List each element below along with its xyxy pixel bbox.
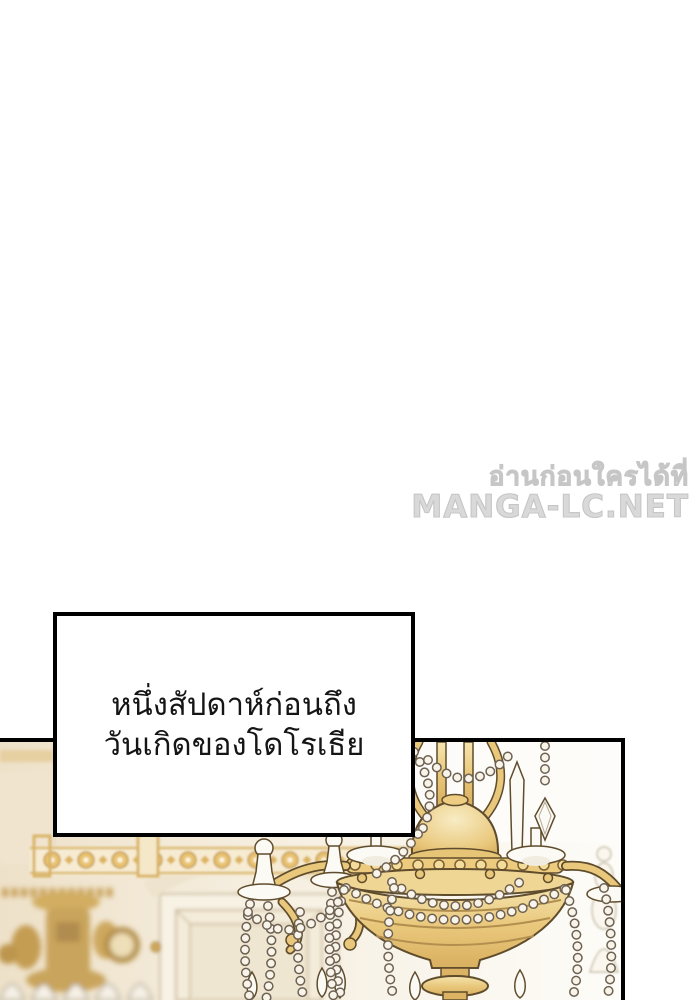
watermark-site-name: MANGA-LC.NET: [411, 491, 689, 524]
site-watermark: อ่านก่อนใครได้ที่ MANGA-LC.NET: [411, 463, 689, 525]
narration-line-1: หนึ่งสัปดาห์ก่อนถึง: [111, 685, 357, 725]
narration-box: หนึ่งสัปดาห์ก่อนถึง วันเกิดของโดโรเธีย: [53, 612, 415, 837]
narration-line-2: วันเกิดของโดโรเธีย: [104, 725, 365, 765]
manga-page: อ่านก่อนใครได้ที่ MANGA-LC.NET: [0, 0, 700, 1000]
watermark-thai-text: อ่านก่อนใครได้ที่: [411, 463, 689, 491]
